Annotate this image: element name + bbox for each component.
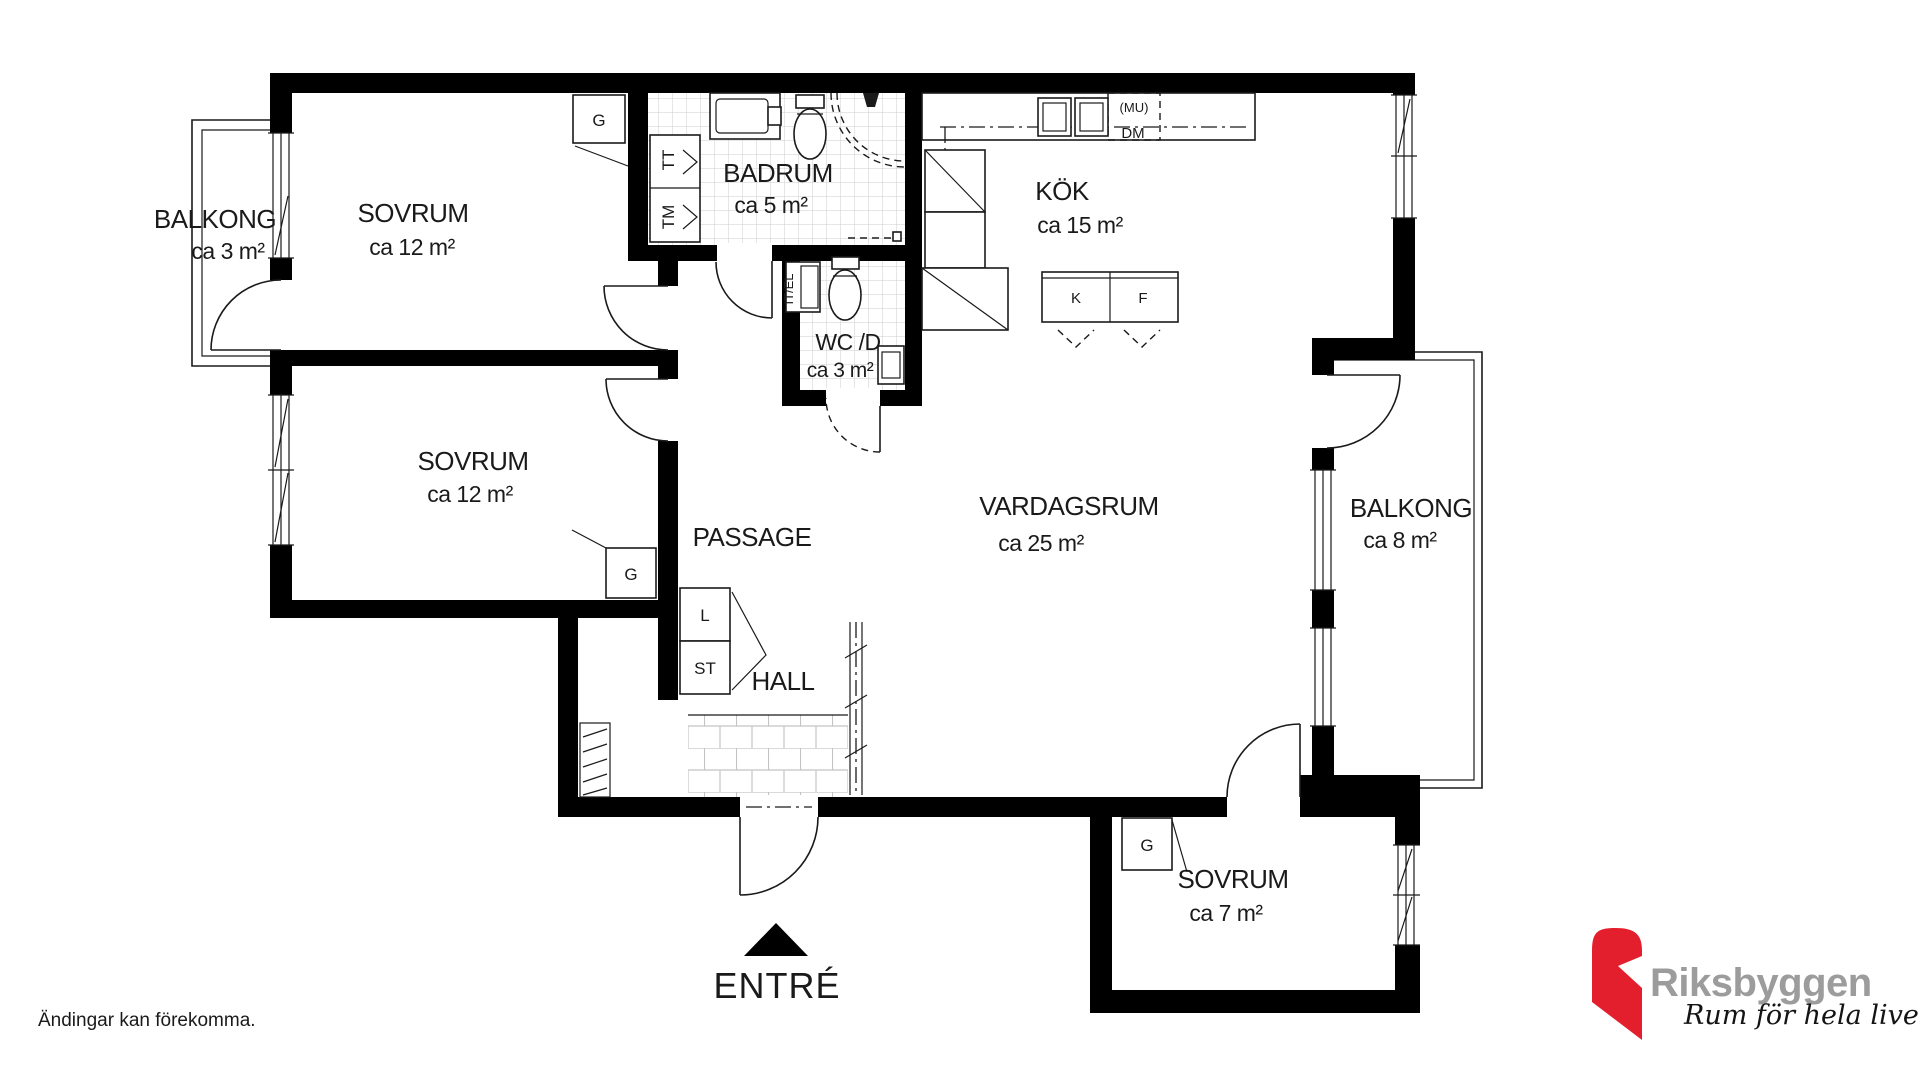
label-balkong1-area: ca 3 m² — [191, 238, 265, 264]
logo: Riksbyggen Rum för hela livet — [1592, 928, 1920, 1040]
window-vardagsrum-2 — [1310, 628, 1336, 726]
door-badrum — [716, 243, 772, 318]
wall-sovrum3-south — [1090, 990, 1420, 1013]
label-vardagsrum-area: ca 25 m² — [998, 530, 1084, 556]
wall-sovrum2-bottom — [270, 600, 678, 618]
riksbyggen-mark-icon — [1592, 928, 1642, 1040]
label-g1: G — [592, 111, 605, 130]
wall-left-pier2 — [270, 258, 292, 280]
door-sovrum1 — [604, 286, 680, 350]
label-itel: IT/EL — [781, 273, 796, 304]
label-f: F — [1138, 290, 1147, 307]
label-sovrum1-name: SOVRUM — [357, 198, 468, 228]
coat-rack — [580, 723, 610, 797]
entry-label: ENTRÉ — [713, 965, 840, 1006]
logo-brand-text: Riksbyggen — [1650, 961, 1872, 1005]
window-vardagsrum-1 — [1310, 470, 1336, 590]
door-balcony-left — [211, 280, 294, 350]
label-wc-name: WC /D — [815, 329, 880, 355]
wall-vr-east-pier1 — [1312, 338, 1334, 375]
label-tm: TM — [659, 205, 678, 230]
label-g3: G — [1140, 836, 1153, 855]
label-sovrum3-name: SOVRUM — [1177, 864, 1288, 894]
balcony-right-inner — [1334, 360, 1474, 780]
wall-badrum-wc-east — [905, 93, 922, 406]
wall-vr-east-pier3 — [1312, 590, 1334, 628]
entry-marker: ENTRÉ — [713, 923, 840, 1006]
wall-left-pier1 — [270, 73, 292, 135]
label-sovrum1-area: ca 12 m² — [369, 234, 455, 260]
label-sovrum3-area: ca 7 m² — [1189, 900, 1263, 926]
wall-top — [270, 73, 1415, 93]
label-st: ST — [694, 659, 716, 678]
label-kok-area: ca 15 m² — [1037, 212, 1123, 238]
label-g2: G — [624, 565, 637, 584]
window-sovrum2 — [268, 395, 294, 545]
label-wc-area: ca 3 m² — [807, 359, 874, 382]
door-entrance — [740, 795, 818, 895]
wall-wc-south-a — [782, 390, 826, 406]
glass-partition — [845, 622, 867, 795]
balcony-right-outline — [1334, 352, 1482, 788]
wardrobe-sovrum1-door-line — [575, 146, 628, 166]
wall-badrum-west — [628, 93, 648, 245]
wc-toilet — [829, 257, 861, 320]
wall-sovrum3-west — [1090, 797, 1112, 1013]
tall-cabinets — [922, 150, 1008, 330]
wall-badrum-south-a — [628, 245, 717, 261]
window-sovrum3 — [1393, 845, 1420, 945]
label-kok-name: KÖK — [1035, 176, 1090, 206]
wall-hall-south-a — [558, 797, 740, 817]
label-badrum-name: BADRUM — [723, 158, 833, 188]
label-badrum-area: ca 5 m² — [734, 192, 808, 218]
bathroom-toilet — [794, 95, 826, 159]
wall-vr-east-pier2 — [1312, 448, 1334, 470]
label-dm: DM — [1121, 125, 1144, 142]
door-balcony-right — [1310, 375, 1400, 448]
label-vardagsrum-name: VARDAGSRUM — [979, 491, 1158, 521]
label-tt: TT — [659, 150, 678, 171]
door-sovrum3 — [1227, 724, 1300, 819]
entry-arrow-icon — [744, 923, 808, 956]
wall-passage-west-c — [658, 441, 678, 700]
label-mu: (MU) — [1120, 100, 1149, 115]
disclaimer-text: Ändingar kan förekomma. — [38, 1010, 256, 1031]
wall-vr-east-pier4 — [1312, 726, 1334, 797]
logo-tagline-text: Rum för hela livet — [1683, 1000, 1920, 1031]
wall-wc-south-b — [880, 390, 922, 406]
door-sovrum2 — [606, 379, 680, 441]
wall-passage-west-b — [658, 350, 678, 379]
label-passage: PASSAGE — [693, 522, 812, 552]
label-k: K — [1071, 290, 1081, 307]
wall-hall-west — [558, 618, 578, 817]
label-sovrum2-name: SOVRUM — [417, 446, 528, 476]
bathroom-sink — [710, 93, 781, 139]
label-balkong1-name: BALKONG — [154, 204, 276, 234]
hall-entry-tile-floor — [688, 715, 848, 797]
wardrobe-sovrum2-door-line — [572, 530, 606, 548]
label-hall: HALL — [751, 666, 814, 696]
wall-south-b — [818, 797, 1232, 817]
label-balkong2-name: BALKONG — [1350, 493, 1472, 523]
wall-sovrum3-east-pier1 — [1395, 817, 1420, 845]
label-balkong2-area: ca 8 m² — [1363, 527, 1437, 553]
label-l: L — [700, 606, 709, 625]
wall-sovrum3-east-pier2 — [1395, 945, 1420, 1013]
window-sovrum1 — [268, 133, 294, 258]
wall-kok-east-pier1 — [1393, 73, 1415, 95]
floor-plan: BALKONG ca 3 m² SOVRUM ca 12 m² BADRUM c… — [0, 0, 1920, 1080]
wall-bedroom-divider — [270, 350, 678, 366]
window-kok — [1391, 95, 1417, 218]
label-sovrum2-area: ca 12 m² — [427, 481, 513, 507]
fridge-freezer — [1042, 272, 1178, 347]
door-wc — [826, 388, 880, 452]
